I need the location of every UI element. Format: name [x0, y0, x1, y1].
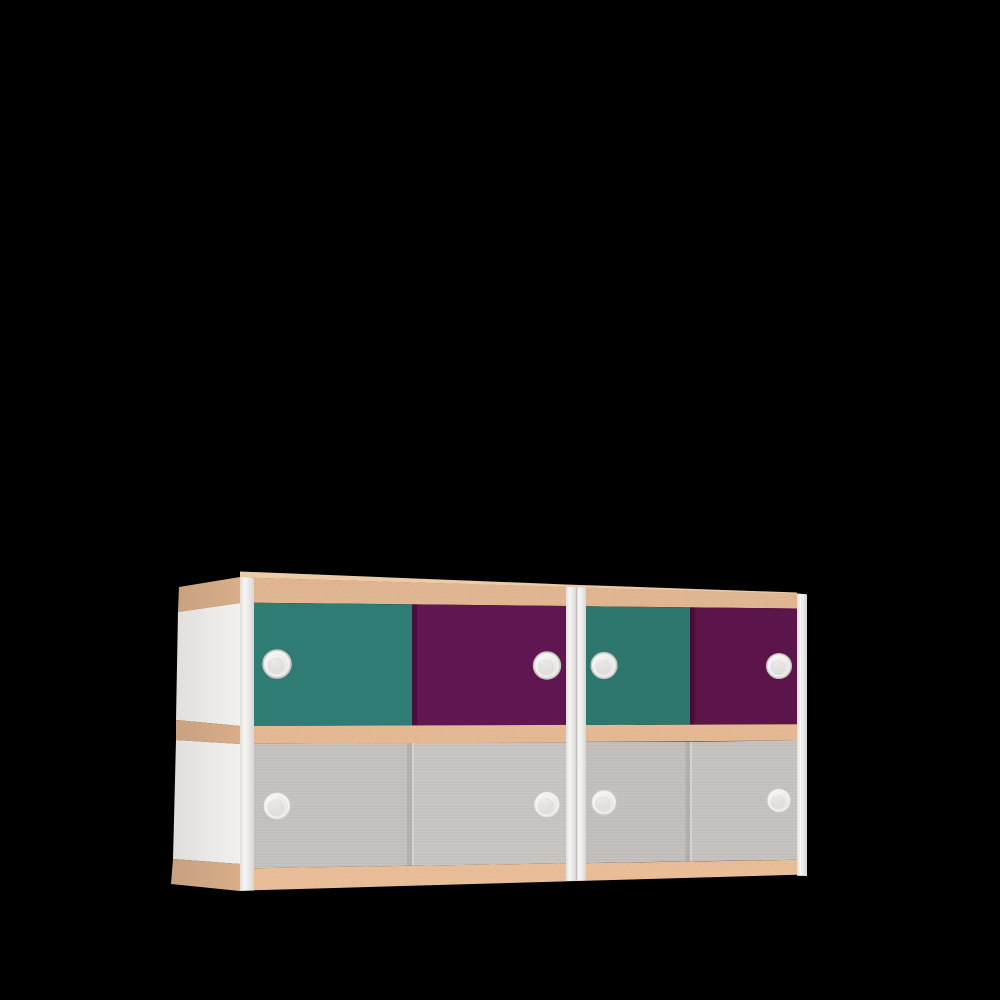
render-canvas	[0, 0, 1000, 1000]
handle-module-1-gray-right-icon	[534, 791, 561, 818]
handle-module-1-purple-icon	[534, 652, 561, 679]
handle-module-2-gray-left-icon	[591, 790, 617, 816]
module-1-gray-door-seam-highlight	[412, 743, 414, 866]
module-1-gray-door-seam-shadow	[407, 743, 412, 866]
handle-module-1-gray-left-icon	[263, 792, 291, 820]
module-2	[586, 587, 797, 880]
handle-module-2-teal-icon	[591, 653, 617, 679]
handle-module-1-teal-icon	[263, 650, 291, 678]
handle-module-2-purple-icon	[767, 654, 792, 679]
module-2-purple-door-edge-shadow	[690, 607, 695, 724]
left-corner-post	[240, 577, 254, 891]
junction-post-right	[577, 587, 587, 881]
handle-module-2-gray-right-icon	[767, 788, 792, 813]
module-1-middle-rail-grain	[254, 725, 566, 744]
module-1-purple-door-edge-shadow	[412, 604, 417, 725]
right-corner-post	[797, 594, 807, 877]
junction-post-left	[566, 587, 577, 882]
left-side-face	[171, 577, 240, 891]
module-1	[254, 578, 566, 891]
side-face-shading	[171, 577, 240, 891]
module-2-middle-rail-grain	[586, 724, 797, 742]
module-2-gray-door-seam-highlight	[690, 742, 692, 862]
cabinet-render	[0, 0, 1000, 1000]
front-face	[240, 572, 807, 892]
module-2-gray-door-seam-shadow	[686, 742, 691, 862]
